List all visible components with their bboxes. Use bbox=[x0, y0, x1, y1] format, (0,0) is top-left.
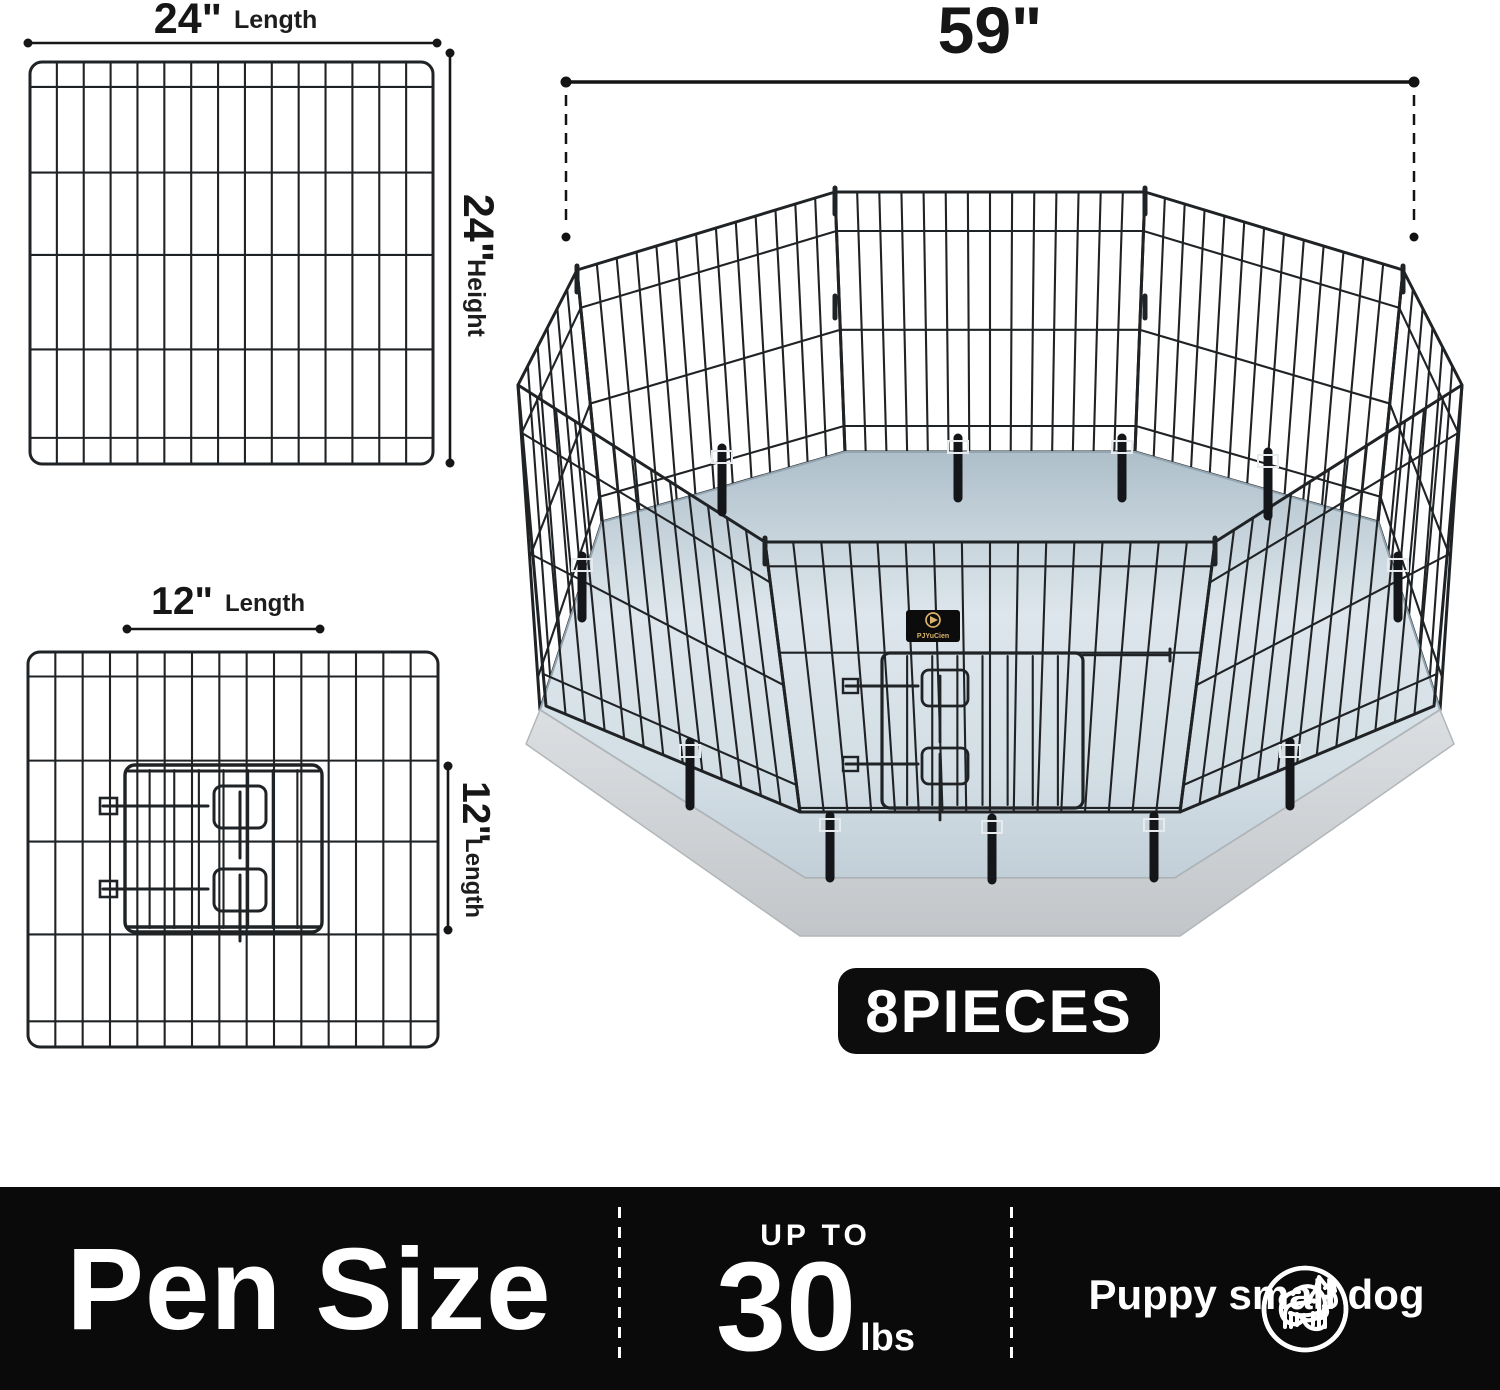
large-panel-length-label: Length bbox=[234, 6, 317, 34]
large-panel-diagram: 24" Length 24" Height bbox=[0, 0, 500, 540]
small-panel-length-label: Length bbox=[225, 590, 305, 617]
pieces-badge: 8PIECES bbox=[838, 968, 1160, 1054]
small-panel-length-dimension: 12" Length bbox=[123, 580, 325, 634]
weight-value: 30 bbox=[716, 1255, 856, 1358]
small-panel-door bbox=[100, 765, 322, 941]
small-panel-height-dimension: 12" Length bbox=[444, 762, 498, 935]
pen-width-value: 59" bbox=[938, 0, 1043, 67]
footer-bar: Pen Size UP TO 30 lbs bbox=[0, 1187, 1500, 1390]
small-dog-icon bbox=[1257, 1261, 1353, 1357]
large-panel-height-label: Height bbox=[462, 259, 490, 337]
small-panel-length-value: 12" bbox=[151, 580, 213, 623]
brand-text: PJYuCien bbox=[917, 633, 949, 640]
small-panel-height-value: 12" bbox=[454, 781, 497, 843]
suitable-pets-block: Puppy small dog bbox=[1013, 1187, 1500, 1390]
weight-limit-block: UP TO 30 lbs bbox=[621, 1187, 1010, 1390]
weight-unit: lbs bbox=[860, 1323, 915, 1354]
small-panel-grid bbox=[28, 652, 438, 1047]
small-panel-height-label: Length bbox=[460, 838, 487, 918]
pen-3d-diagram: 59" PJYuCien bbox=[500, 0, 1500, 960]
small-panel-diagram: 12" Length 12" Length bbox=[0, 540, 510, 1080]
large-panel-length-value: 24" bbox=[154, 0, 222, 43]
large-panel-length-dimension: 24" Length bbox=[24, 0, 442, 48]
large-panel-grid bbox=[30, 62, 433, 464]
pen-size-title: Pen Size bbox=[0, 1187, 618, 1390]
large-panel-height-dimension: 24" Height bbox=[446, 49, 501, 468]
brand-tag: PJYuCien bbox=[906, 610, 960, 642]
large-panel-height-value: 24" bbox=[454, 194, 500, 262]
